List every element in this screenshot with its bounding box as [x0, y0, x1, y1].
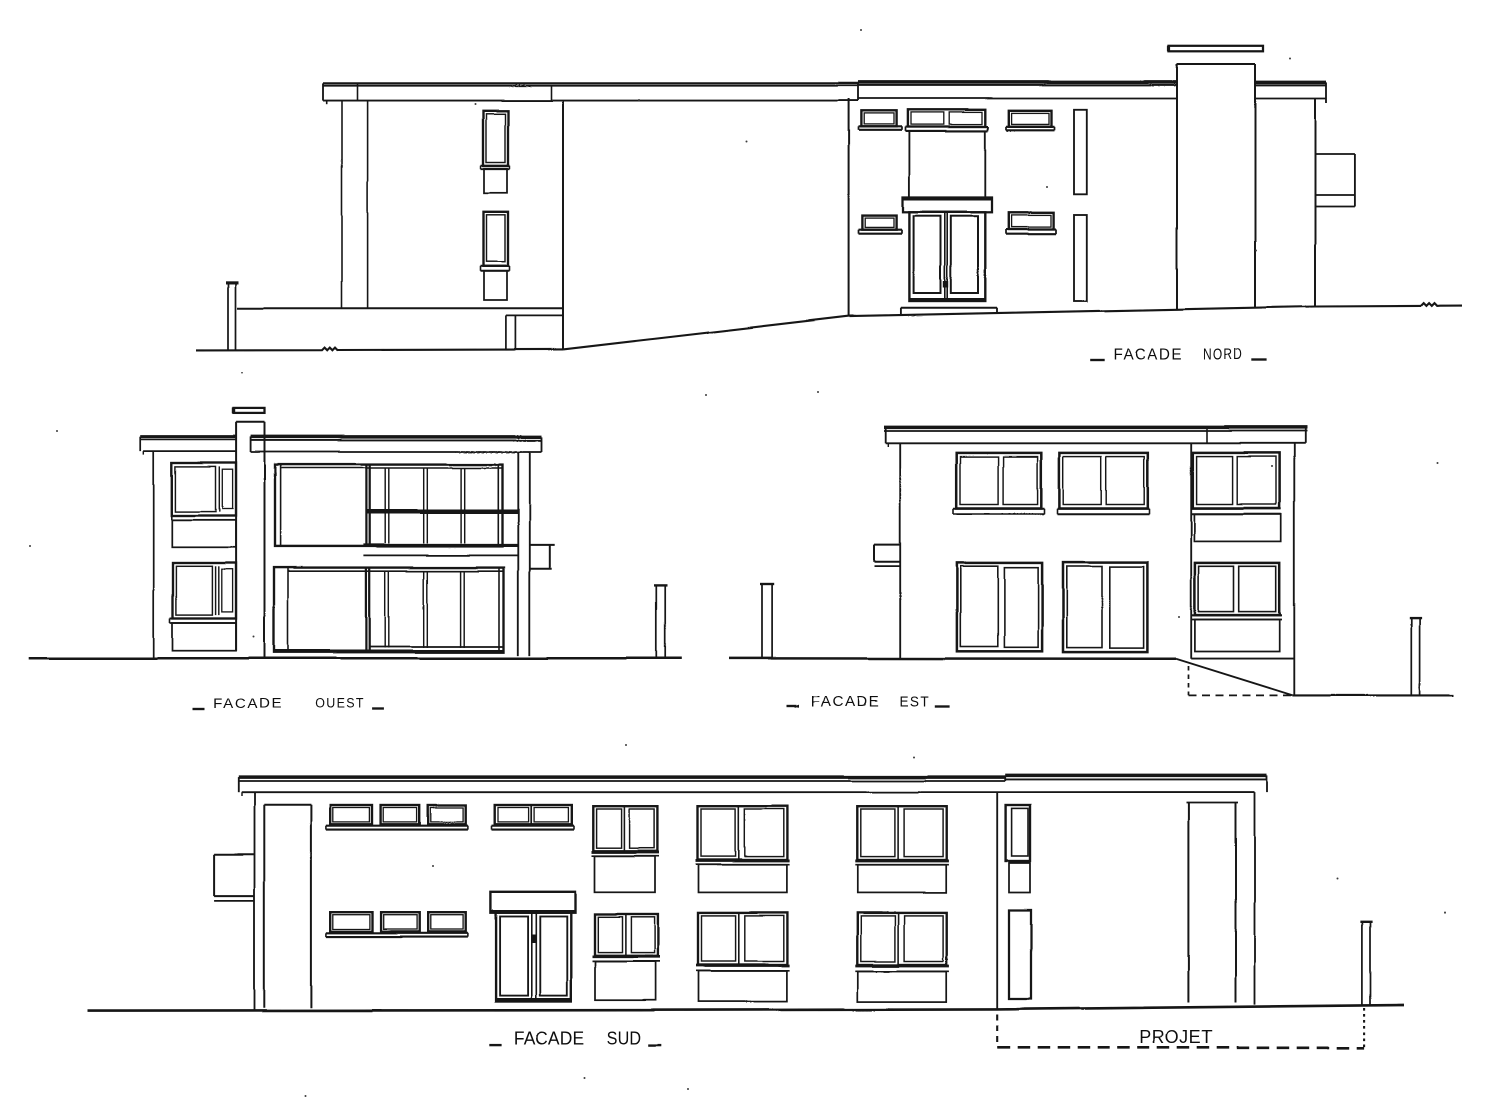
- svg-text:FACADE: FACADE: [514, 1028, 585, 1048]
- svg-text:EST: EST: [900, 693, 931, 710]
- svg-text:NORD: NORD: [1203, 347, 1243, 364]
- svg-text:FACADE: FACADE: [811, 693, 881, 710]
- svg-text:FACADE: FACADE: [1113, 347, 1183, 364]
- svg-text:OUEST: OUEST: [315, 696, 365, 712]
- svg-text:FACADE: FACADE: [213, 696, 283, 712]
- svg-text:PROJET: PROJET: [1139, 1027, 1213, 1047]
- svg-text:SUD: SUD: [607, 1028, 642, 1048]
